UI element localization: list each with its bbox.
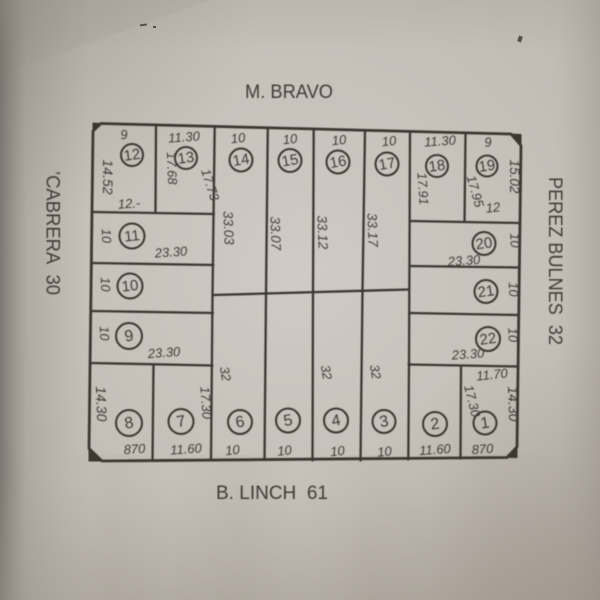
- svg-text:17.91: 17.91: [414, 172, 431, 206]
- svg-text:12: 12: [485, 199, 502, 216]
- svg-text:23.30: 23.30: [146, 344, 181, 361]
- svg-text:33.17: 33.17: [364, 213, 380, 248]
- svg-text:12: 12: [123, 146, 142, 165]
- svg-text:17.68: 17.68: [164, 152, 180, 186]
- svg-text:10: 10: [230, 130, 247, 147]
- svg-text:33.07: 33.07: [267, 216, 283, 251]
- svg-text:16: 16: [328, 152, 347, 172]
- svg-text:10: 10: [282, 131, 299, 148]
- svg-text:19: 19: [478, 157, 497, 176]
- svg-text:14.30: 14.30: [93, 386, 110, 422]
- svg-text:18: 18: [428, 157, 447, 176]
- svg-text:10: 10: [329, 443, 346, 460]
- svg-text:’CABRERA 30: ’CABRERA 30: [42, 171, 64, 295]
- svg-text:11.30: 11.30: [168, 128, 201, 145]
- svg-text:10: 10: [507, 233, 523, 249]
- svg-text:14.30: 14.30: [505, 386, 522, 422]
- svg-text:10: 10: [98, 277, 114, 293]
- svg-text:10: 10: [331, 132, 348, 149]
- svg-text:23.30: 23.30: [446, 252, 481, 269]
- svg-text:20: 20: [475, 234, 494, 253]
- svg-text:14: 14: [231, 150, 250, 170]
- svg-text:33.03: 33.03: [220, 211, 236, 246]
- svg-text:33.12: 33.12: [314, 215, 330, 250]
- svg-text:11: 11: [123, 227, 140, 246]
- svg-text:14.52: 14.52: [100, 159, 116, 194]
- svg-text:10: 10: [505, 327, 521, 343]
- svg-text:11.30: 11.30: [424, 132, 457, 149]
- svg-text:10: 10: [276, 442, 293, 459]
- svg-text:10: 10: [121, 277, 139, 296]
- svg-text:10: 10: [381, 133, 398, 150]
- svg-text:870: 870: [123, 441, 146, 458]
- svg-text:870: 870: [471, 441, 494, 458]
- svg-text:17.30: 17.30: [197, 386, 214, 420]
- svg-text:21: 21: [477, 282, 496, 301]
- svg-text:11.60: 11.60: [419, 441, 452, 458]
- svg-text:10: 10: [506, 282, 522, 298]
- svg-text:9: 9: [484, 134, 493, 150]
- svg-text:15: 15: [280, 151, 299, 171]
- svg-text:10: 10: [97, 326, 113, 342]
- svg-text:10: 10: [376, 443, 393, 460]
- svg-text:M. BRAVO: M. BRAVO: [245, 81, 333, 103]
- svg-text:10: 10: [224, 442, 241, 459]
- svg-text:15.02: 15.02: [507, 160, 522, 194]
- svg-text:10: 10: [99, 228, 115, 244]
- svg-text:23.30: 23.30: [450, 345, 485, 362]
- svg-text:PEREZ BULNES 32: PEREZ BULNES 32: [544, 177, 566, 345]
- svg-text:23.30: 23.30: [153, 243, 188, 260]
- svg-text:17: 17: [377, 154, 396, 174]
- svg-text:9: 9: [120, 127, 129, 143]
- svg-text:11.60: 11.60: [170, 440, 203, 457]
- svg-text:B. LINCH 61: B. LINCH 61: [216, 482, 328, 504]
- svg-text:12.-: 12.-: [117, 195, 141, 212]
